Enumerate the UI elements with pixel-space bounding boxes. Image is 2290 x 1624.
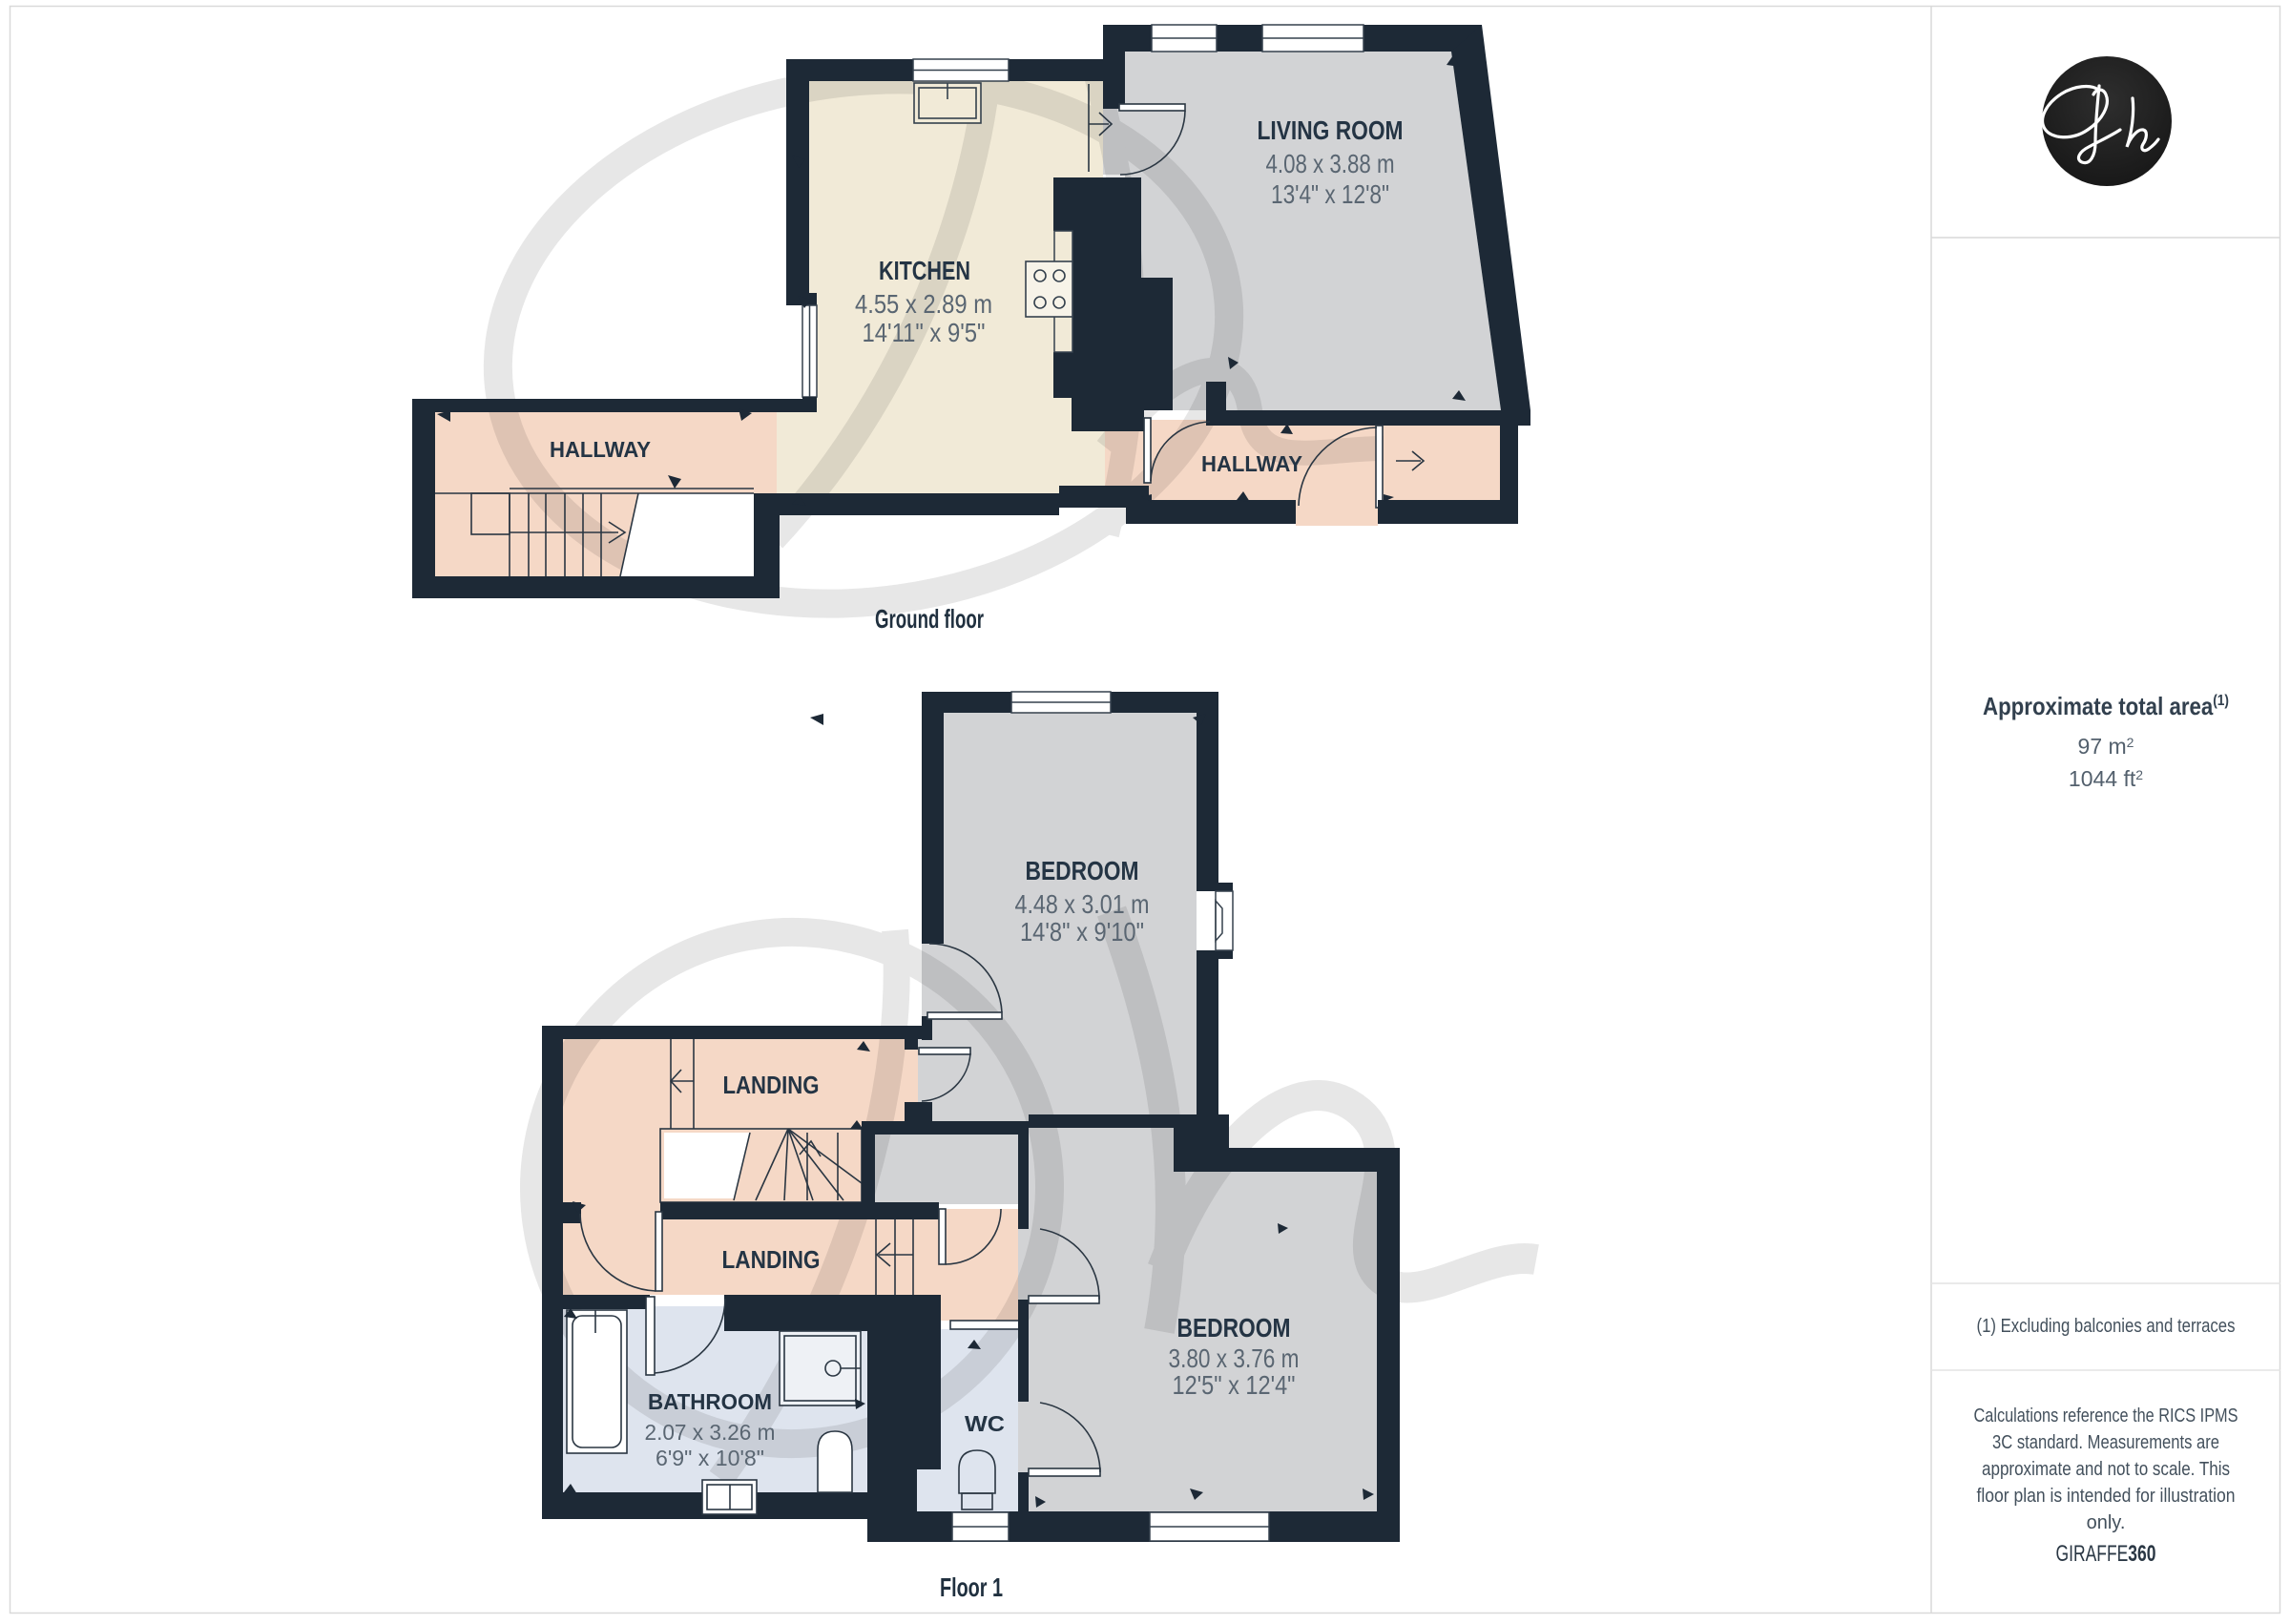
svg-text:3.80 x 3.76 m: 3.80 x 3.76 m bbox=[1169, 1343, 1300, 1373]
svg-text:97 m2: 97 m2 bbox=[2078, 734, 2134, 759]
svg-text:HALLWAY: HALLWAY bbox=[550, 437, 651, 462]
svg-text:14'11" x 9'5": 14'11" x 9'5" bbox=[863, 318, 986, 347]
svg-text:6'9" x 10'8": 6'9" x 10'8" bbox=[656, 1446, 764, 1470]
svg-text:BEDROOM: BEDROOM bbox=[1026, 856, 1139, 885]
svg-text:approximate and not to scale.: approximate and not to scale. This bbox=[1982, 1459, 2230, 1480]
svg-text:1044 ft2: 1044 ft2 bbox=[2069, 766, 2143, 791]
svg-text:14'8" x 9'10": 14'8" x 9'10" bbox=[1020, 917, 1144, 947]
svg-text:Approximate total area(1): Approximate total area(1) bbox=[1983, 692, 2229, 720]
svg-text:4.48 x 3.01 m: 4.48 x 3.01 m bbox=[1015, 889, 1150, 919]
svg-text:KITCHEN: KITCHEN bbox=[879, 256, 970, 285]
svg-text:Ground floor: Ground floor bbox=[875, 604, 984, 634]
svg-text:12'5" x 12'4": 12'5" x 12'4" bbox=[1173, 1370, 1296, 1400]
svg-text:WC: WC bbox=[965, 1411, 1005, 1436]
svg-text:LANDING: LANDING bbox=[723, 1071, 820, 1099]
svg-text:LIVING ROOM: LIVING ROOM bbox=[1258, 115, 1404, 145]
svg-text:Calculations reference the RIC: Calculations reference the RICS IPMS bbox=[1974, 1405, 2238, 1426]
svg-text:2.07 x 3.26 m: 2.07 x 3.26 m bbox=[645, 1420, 776, 1445]
svg-text:GIRAFFE360: GIRAFFE360 bbox=[2056, 1541, 2156, 1567]
svg-text:13'4" x 12'8": 13'4" x 12'8" bbox=[1271, 179, 1389, 209]
svg-text:Floor 1: Floor 1 bbox=[940, 1572, 1003, 1602]
svg-text:(1) Excluding balconies and te: (1) Excluding balconies and terraces bbox=[1977, 1316, 2236, 1337]
svg-text:LANDING: LANDING bbox=[722, 1245, 821, 1274]
svg-text:HALLWAY: HALLWAY bbox=[1201, 451, 1302, 476]
svg-text:4.08 x 3.88 m: 4.08 x 3.88 m bbox=[1266, 149, 1395, 178]
svg-text:4.55 x 2.89 m: 4.55 x 2.89 m bbox=[855, 289, 992, 319]
svg-text:floor plan is intended for ill: floor plan is intended for illustration bbox=[1977, 1486, 2236, 1507]
svg-text:3C standard. Measurements are: 3C standard. Measurements are bbox=[1992, 1432, 2219, 1453]
svg-text:BATHROOM: BATHROOM bbox=[648, 1389, 772, 1414]
svg-text:only.: only. bbox=[2087, 1512, 2126, 1533]
svg-text:BEDROOM: BEDROOM bbox=[1177, 1313, 1291, 1343]
